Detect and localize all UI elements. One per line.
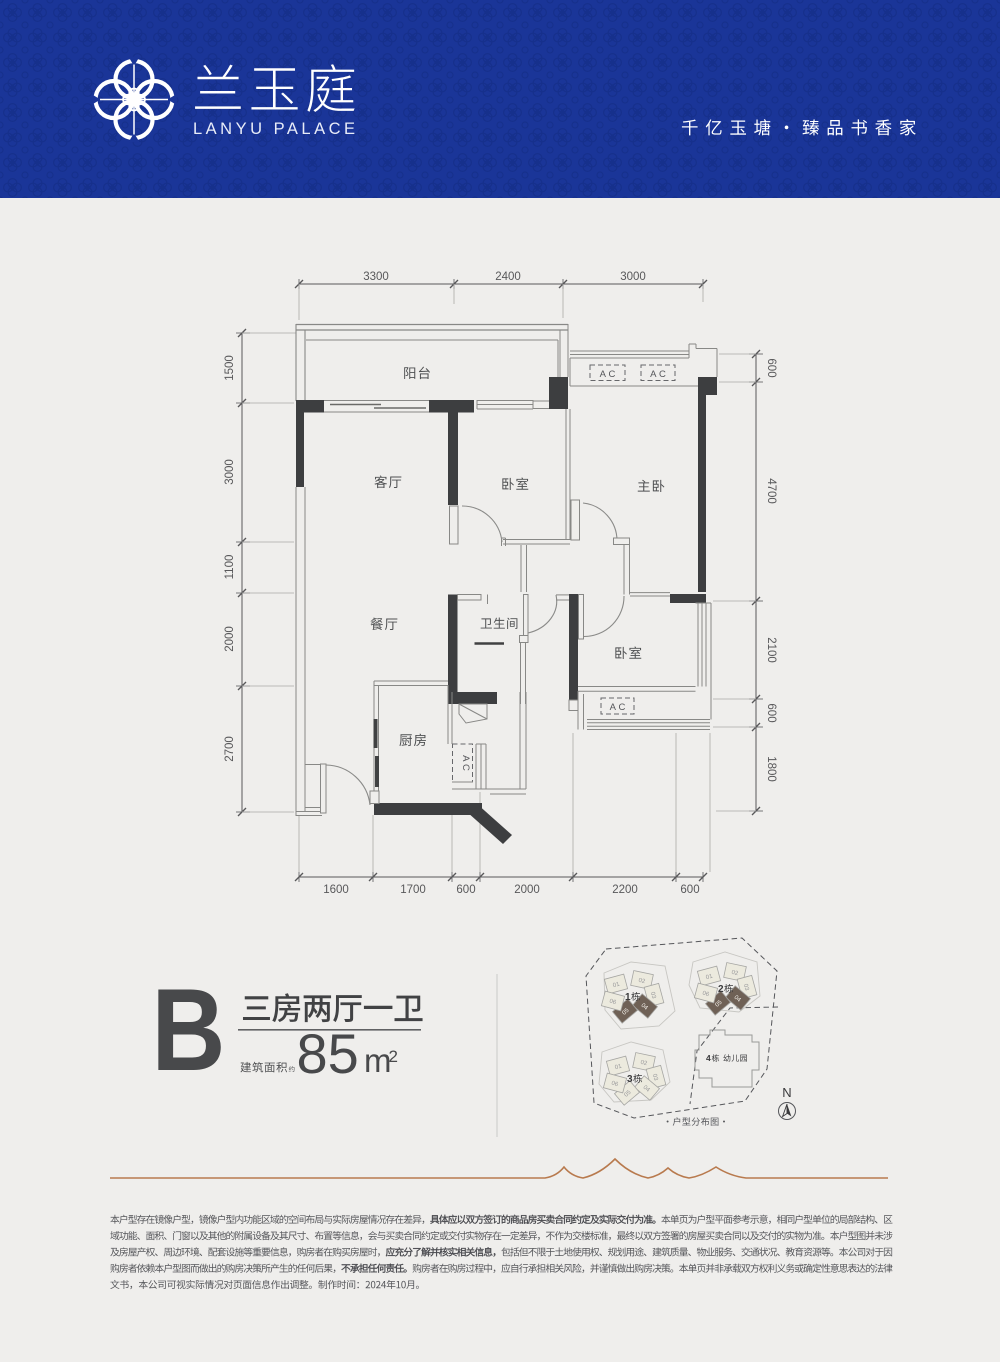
svg-text:600: 600 [765,358,777,377]
svg-text:A C: A C [600,369,616,380]
svg-text:2000: 2000 [224,626,236,652]
svg-text:2100: 2100 [765,637,777,663]
svg-text:4: 4 [706,1053,711,1063]
svg-text:A C: A C [650,369,666,380]
svg-text:m: m [364,1042,392,1079]
svg-text:2000: 2000 [514,884,540,896]
svg-text:3: 3 [627,1074,633,1085]
svg-text:A C: A C [610,702,626,713]
svg-text:A C: A C [460,755,471,771]
svg-text:3000: 3000 [620,271,646,283]
svg-text:3000: 3000 [224,459,236,485]
svg-text:3300: 3300 [363,271,389,283]
svg-text:1700: 1700 [400,884,426,896]
svg-text:600: 600 [456,884,475,896]
svg-text:1600: 1600 [323,884,349,896]
svg-text:1: 1 [625,992,631,1003]
svg-text:85: 85 [297,1022,359,1085]
svg-text:B: B [152,965,226,1096]
svg-text:2400: 2400 [495,271,521,283]
svg-text:1100: 1100 [224,555,236,580]
svg-text:2: 2 [718,984,724,995]
svg-text:4700: 4700 [765,478,777,504]
svg-text:2: 2 [389,1047,398,1066]
svg-text:2200: 2200 [612,884,638,896]
svg-text:600: 600 [765,703,777,722]
svg-text:1500: 1500 [224,355,236,381]
svg-text:600: 600 [680,884,699,896]
svg-text:1800: 1800 [765,756,777,782]
svg-text:LANYU PALACE: LANYU PALACE [193,120,359,138]
svg-text:N: N [782,1085,791,1100]
svg-text:2700: 2700 [224,736,236,762]
